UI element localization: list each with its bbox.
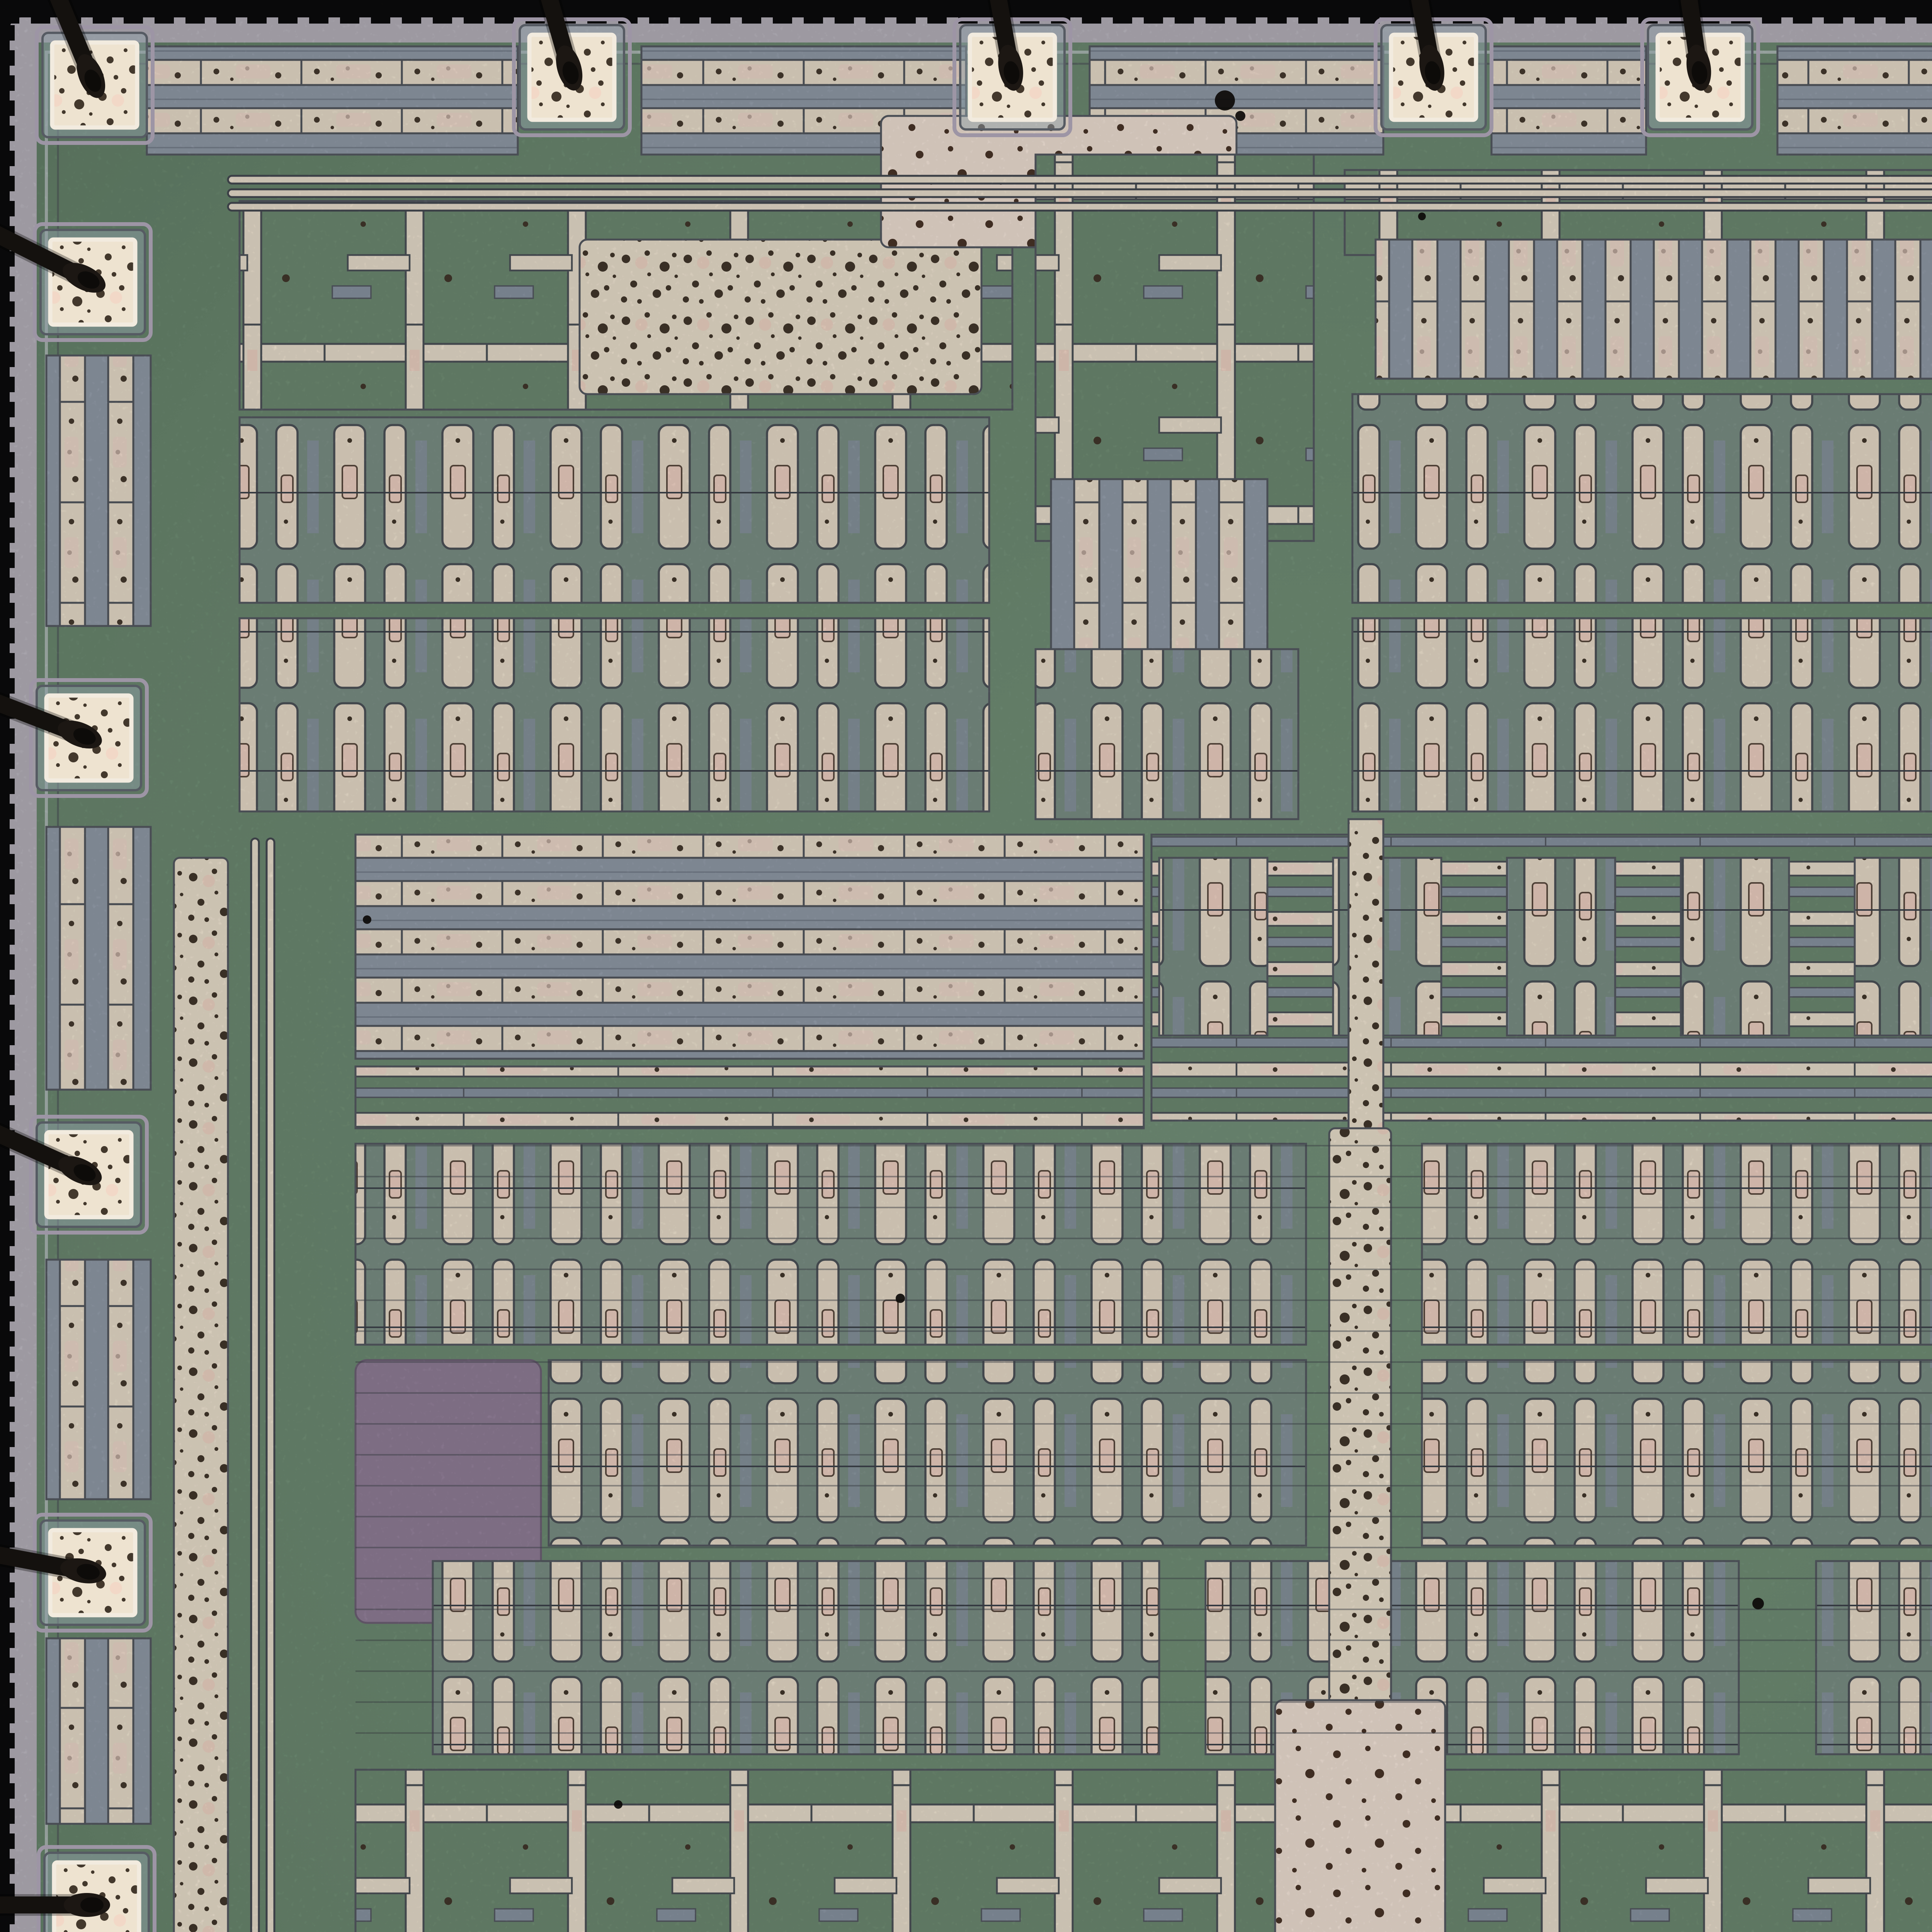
die-photograph: 9KL <box>0 0 1932 1932</box>
die <box>0 0 1932 1932</box>
bond-wire-l5 <box>0 1893 110 1917</box>
film-grain <box>0 0 1932 1932</box>
bond-pad-l5 <box>39 1847 155 1932</box>
die-photograph-stage: 9KL <box>0 0 1932 1932</box>
